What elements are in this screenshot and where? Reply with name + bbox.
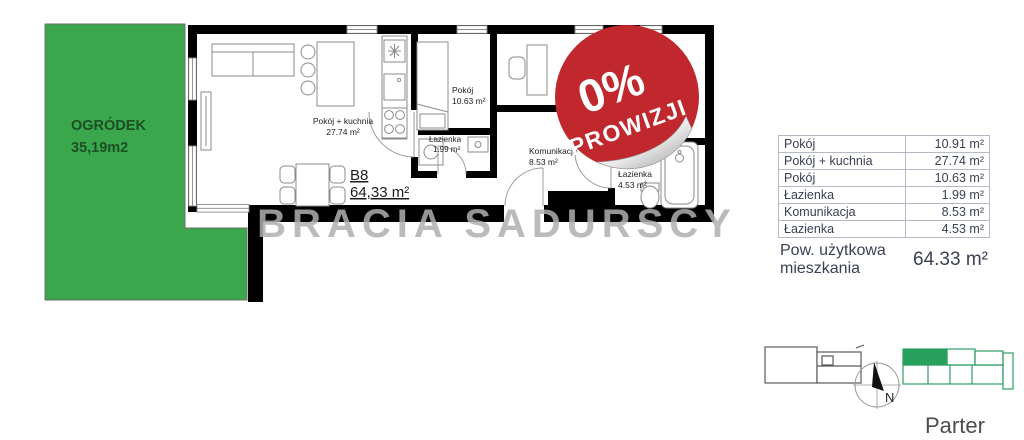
building-footprint-green — [903, 349, 1013, 389]
table-row: Łazienka 1.99 m² — [779, 187, 990, 204]
dining-table — [280, 164, 345, 206]
room-name: Pokój — [779, 136, 906, 153]
room-value: 10.91 m² — [905, 136, 989, 153]
unit-code: B8 — [350, 167, 368, 184]
agency-watermark: BRACIA SADURSCY — [257, 202, 737, 246]
compass-needle — [872, 362, 884, 391]
label-hall-area: 8.53 m² — [529, 157, 558, 167]
room-name: Pokój — [779, 170, 906, 187]
room-name: Komunikacja — [779, 204, 906, 221]
wardrobe — [201, 92, 211, 150]
compass-north-label: N — [885, 390, 894, 405]
room-value: 10.63 m² — [905, 170, 989, 187]
room-areas: Pokój 10.91 m² Pokój + kuchnia 27.74 m² … — [778, 135, 990, 238]
window-top-2 — [457, 26, 487, 34]
floor-label: Parter — [925, 413, 985, 438]
table-row: Pokój + kuchnia 27.74 m² — [779, 153, 990, 170]
kitchen-island — [301, 42, 354, 106]
total-area-value: 64.33 m² — [913, 249, 988, 271]
window-bottom-left — [197, 205, 249, 213]
label-bedroom: Pokój — [452, 85, 473, 95]
table-row: Łazienka 4.53 m² — [779, 221, 990, 238]
garden-area-value: 35,19m2 — [71, 140, 128, 156]
table-row: Pokój 10.63 m² — [779, 170, 990, 187]
label-bathroom-small-area: 1.99 m² — [433, 145, 460, 154]
door-entrance — [505, 168, 543, 206]
table-row: Pokój 10.91 m² — [779, 136, 990, 153]
floorplan-page: OGRÓDEK 35,19m2 — [0, 0, 1024, 440]
room-value: 1.99 m² — [905, 187, 989, 204]
label-bathroom-large: Łazienka — [618, 169, 652, 179]
label-bathroom-large-area: 4.53 m² — [618, 180, 647, 190]
sofa — [212, 44, 294, 76]
room-name: Łazienka — [779, 187, 906, 204]
table-row: Komunikacja 8.53 m² — [779, 204, 990, 221]
unit-area: 64,33 m² — [350, 184, 409, 201]
window-top-1 — [347, 26, 377, 34]
area-table: Pokój 10.91 m² Pokój + kuchnia 27.74 m² … — [778, 135, 990, 278]
room-name: Łazienka — [779, 221, 906, 238]
room-name: Pokój + kuchnia — [779, 153, 906, 170]
garden-label: OGRÓDEK — [71, 116, 146, 134]
window-left-2 — [189, 146, 197, 206]
window-left-1 — [189, 58, 197, 100]
kitchen-counter — [382, 36, 407, 139]
label-livingroom: Pokój + kuchnia — [313, 116, 374, 126]
building-footprint-gray — [765, 345, 864, 383]
bed — [417, 42, 448, 130]
label-bathroom-small: Łazienka — [429, 135, 462, 144]
promo-badge: 0% PROWIZJI — [555, 25, 699, 169]
room-value: 8.53 m² — [905, 204, 989, 221]
room-value: 4.53 m² — [905, 221, 989, 238]
washbasin-small — [468, 137, 488, 152]
unit-highlight — [903, 349, 947, 365]
label-livingroom-area: 27.74 m² — [326, 127, 360, 137]
total-area-label: Pow. użytkowa mieszkania — [780, 242, 913, 278]
desk-and-chair — [509, 45, 547, 95]
total-area-row: Pow. użytkowa mieszkania 64.33 m² — [778, 242, 990, 278]
room-value: 27.74 m² — [905, 153, 989, 170]
label-bedroom-area: 10.63 m² — [452, 96, 486, 106]
